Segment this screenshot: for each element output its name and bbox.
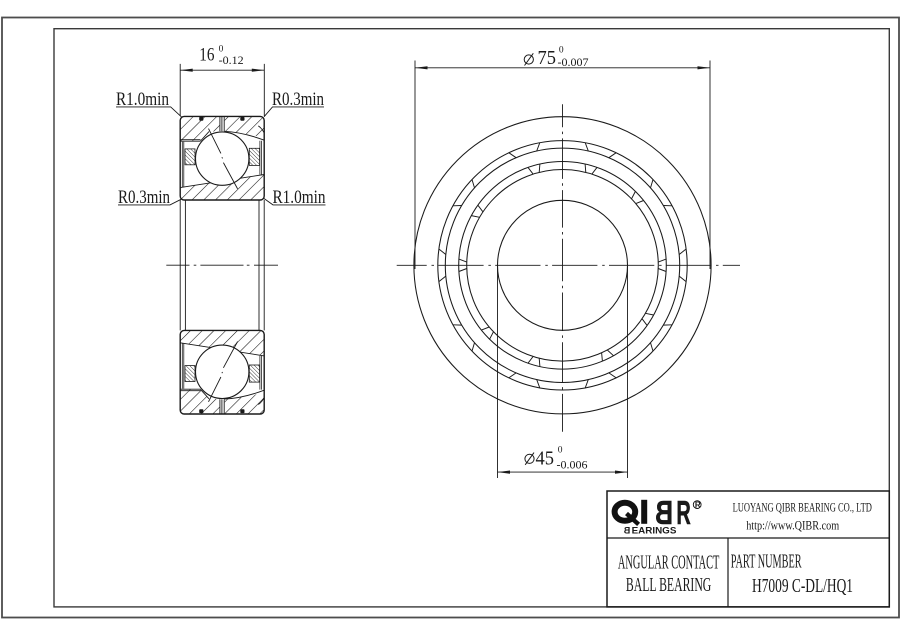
svg-text:R: R [676, 494, 690, 531]
svg-text:EARINGS: EARINGS [632, 526, 677, 536]
svg-text:PART NUMBER: PART NUMBER [731, 551, 802, 572]
svg-text:75: 75 [538, 48, 557, 69]
svg-text:B: B [623, 526, 630, 536]
svg-text:BALL BEARING: BALL BEARING [626, 575, 711, 596]
svg-text:R: R [695, 501, 701, 510]
svg-text:-0.006: -0.006 [557, 457, 588, 471]
svg-text:16: 16 [199, 45, 214, 65]
svg-text:-0.007: -0.007 [558, 55, 589, 69]
svg-text:LUOYANG QIBR BEARING CO., LTD: LUOYANG QIBR BEARING CO., LTD [733, 501, 872, 515]
svg-text:H7009 C-DL/HQ1: H7009 C-DL/HQ1 [752, 576, 853, 597]
svg-text:45: 45 [536, 448, 555, 469]
svg-text:ANGULAR CONTACT: ANGULAR CONTACT [618, 552, 720, 573]
svg-text:0: 0 [558, 446, 563, 456]
svg-text:http://www.QIBR.com: http://www.QIBR.com [746, 519, 839, 533]
svg-text:-0.12: -0.12 [219, 53, 244, 67]
